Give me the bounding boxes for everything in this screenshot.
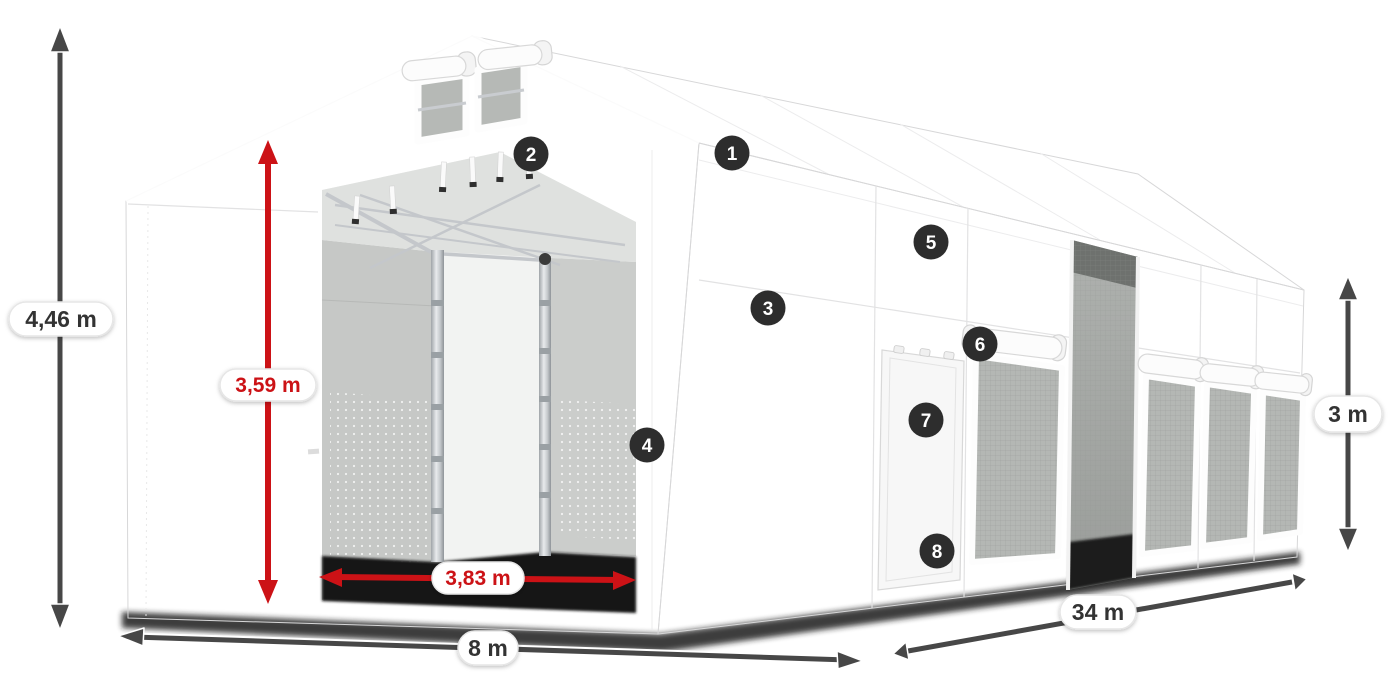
marker-5-number: 5 — [926, 233, 937, 254]
inner-height-label: 3,59 m — [235, 374, 300, 397]
arrow-head-up-icon — [1338, 276, 1358, 300]
marker-8[interactable]: 8 — [920, 534, 955, 569]
arrow-head-down-icon — [258, 580, 278, 604]
marker-7[interactable]: 7 — [909, 403, 944, 438]
arrow-head-down-icon — [50, 604, 70, 630]
arrow-head-down-icon — [1338, 528, 1358, 552]
tent-dimensions-diagram: 4,46 m 3,59 m 3,83 m 8 m 34 m — [0, 0, 1400, 700]
dimension-total-height: 4,46 m — [9, 26, 113, 630]
total-height-label: 4,46 m — [25, 306, 97, 332]
side-mesh-window-4 — [1254, 368, 1313, 538]
front-door-opening — [308, 149, 645, 613]
tent-side-wall — [658, 143, 1313, 634]
marker-4[interactable]: 4 — [630, 428, 665, 463]
side-open-bay — [1068, 240, 1138, 590]
gable-window-right — [477, 40, 553, 129]
marker-4-number: 4 — [642, 436, 653, 457]
arrow-head-right-icon — [837, 651, 863, 669]
marker-2-number: 2 — [526, 145, 537, 166]
tent-illustration — [126, 36, 1313, 634]
marker-8-number: 8 — [932, 542, 943, 563]
marker-1[interactable]: 1 — [715, 136, 750, 171]
door-width-label: 3,83 m — [445, 567, 510, 590]
marker-6-number: 6 — [975, 335, 986, 356]
arrow-head-up-icon — [258, 140, 278, 164]
side-height-label: 3 m — [1328, 401, 1368, 427]
marker-5[interactable]: 5 — [914, 225, 949, 260]
arrow-head-right-icon — [1292, 573, 1307, 591]
gable-window-left — [401, 51, 477, 141]
marker-3-number: 3 — [763, 299, 774, 320]
marker-1-number: 1 — [727, 144, 738, 165]
arrow-head-left-icon — [893, 642, 909, 660]
marker-3[interactable]: 3 — [751, 291, 786, 326]
marker-2[interactable]: 2 — [514, 137, 549, 172]
arrow-head-left-icon — [118, 628, 144, 646]
dimension-inner-height: 3,59 m — [220, 140, 316, 604]
marker-6[interactable]: 6 — [963, 327, 998, 362]
dimension-side-height: 3 m — [1314, 276, 1382, 552]
marker-7-number: 7 — [921, 411, 932, 432]
front-width-label: 8 m — [468, 635, 508, 661]
tent-front-face — [126, 36, 699, 634]
arrow-head-up-icon — [50, 26, 70, 52]
length-label: 34 m — [1072, 599, 1124, 625]
